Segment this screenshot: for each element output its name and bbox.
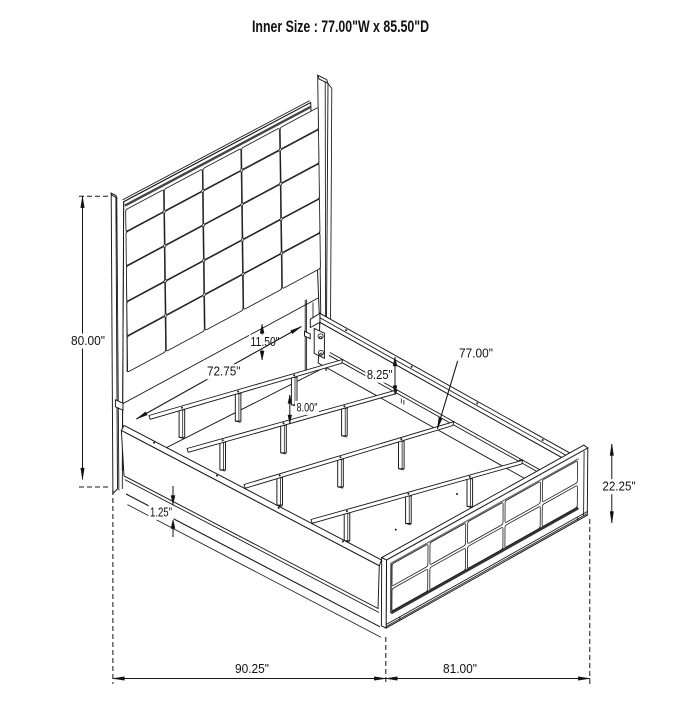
svg-text:81.00": 81.00" <box>443 661 477 676</box>
svg-text:8.25": 8.25" <box>367 367 393 382</box>
svg-text:72.75": 72.75" <box>207 364 241 379</box>
svg-text:22.25": 22.25" <box>602 479 636 494</box>
svg-text:8.00": 8.00" <box>297 401 318 415</box>
svg-text:80.00": 80.00" <box>71 333 105 348</box>
svg-text:Inner Size : 77.00"W x 85.50"D: Inner Size : 77.00"W x 85.50"D <box>252 18 429 36</box>
svg-text:1.25": 1.25" <box>150 505 172 519</box>
svg-text:90.25": 90.25" <box>235 661 269 676</box>
svg-text:77.00": 77.00" <box>459 346 493 361</box>
